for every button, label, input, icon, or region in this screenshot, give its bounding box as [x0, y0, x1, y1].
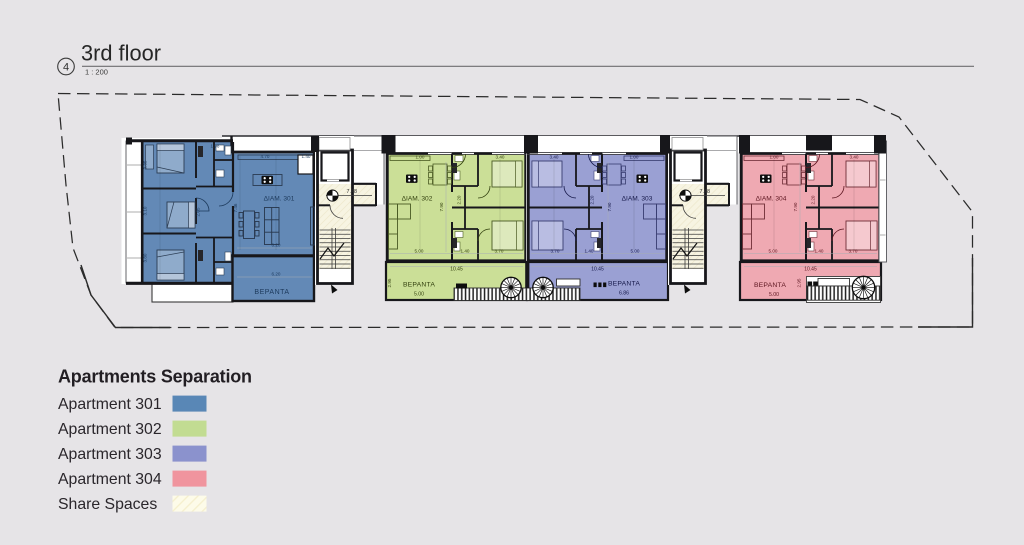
svg-text:7.48: 7.48: [700, 189, 711, 195]
svg-text:3.10: 3.10: [143, 206, 148, 215]
svg-text:ΔΙΑΜ. 302: ΔΙΑΜ. 302: [402, 196, 433, 203]
svg-text:7.46: 7.46: [233, 203, 238, 212]
svg-text:ΒΕΡΑΝΤΑ: ΒΕΡΑΝΤΑ: [403, 282, 435, 289]
svg-text:1 : 200: 1 : 200: [85, 68, 108, 77]
svg-text:2.05: 2.05: [196, 207, 201, 216]
svg-text:2.20: 2.20: [457, 195, 462, 204]
svg-text:Apartment 303: Apartment 303: [58, 446, 162, 463]
svg-text:10.45: 10.45: [591, 267, 604, 273]
svg-text:1.40: 1.40: [302, 154, 311, 159]
svg-text:7.90: 7.90: [607, 202, 612, 211]
svg-text:ΒΕΡΑΝΤΑ: ΒΕΡΑΝΤΑ: [608, 281, 640, 288]
svg-text:7.48: 7.48: [347, 189, 358, 195]
svg-text:Apartment 302: Apartment 302: [58, 421, 162, 438]
svg-text:3.80: 3.80: [143, 253, 148, 262]
svg-text:Apartment 304: Apartment 304: [58, 471, 162, 488]
svg-text:Share Spaces: Share Spaces: [58, 496, 157, 513]
svg-text:Apartment 301: Apartment 301: [58, 396, 162, 413]
svg-text:3.35: 3.35: [143, 160, 148, 169]
svg-text:10.45: 10.45: [450, 267, 463, 273]
svg-text:5.00: 5.00: [631, 249, 640, 254]
svg-text:1.40: 1.40: [461, 249, 470, 254]
svg-text:5.00: 5.00: [769, 292, 779, 298]
svg-text:2.20: 2.20: [590, 195, 595, 204]
svg-text:5.00: 5.00: [769, 249, 778, 254]
svg-text:2.95: 2.95: [387, 278, 392, 287]
svg-text:2.95: 2.95: [797, 278, 802, 287]
svg-text:ΒΕΡΑΝΤΑ: ΒΕΡΑΝΤΑ: [754, 282, 786, 289]
svg-text:2.20: 2.20: [811, 195, 816, 204]
svg-text:7.90: 7.90: [793, 202, 798, 211]
svg-text:ΔΙΑΜ. 304: ΔΙΑΜ. 304: [756, 196, 787, 203]
svg-text:4: 4: [63, 62, 69, 74]
svg-text:1.40: 1.40: [815, 249, 824, 254]
svg-text:3.70: 3.70: [495, 249, 504, 254]
svg-text:6.86: 6.86: [619, 291, 629, 297]
svg-text:7.90: 7.90: [439, 202, 444, 211]
svg-text:ΔΙΑΜ. 301: ΔΙΑΜ. 301: [264, 196, 295, 203]
svg-text:ΒΕΡΑΝΤΑ: ΒΕΡΑΝΤΑ: [254, 289, 289, 296]
svg-text:3rd floor: 3rd floor: [81, 41, 161, 66]
svg-text:5.00: 5.00: [414, 292, 424, 298]
svg-text:ΔΙΑΜ. 303: ΔΙΑΜ. 303: [622, 196, 653, 203]
svg-text:Apartments Separation: Apartments Separation: [58, 366, 252, 386]
svg-text:1.40: 1.40: [585, 249, 594, 254]
svg-text:5.00: 5.00: [415, 249, 424, 254]
svg-text:4.70: 4.70: [261, 154, 270, 159]
svg-text:3.70: 3.70: [551, 249, 560, 254]
svg-text:1.98: 1.98: [211, 144, 220, 149]
svg-text:10.45: 10.45: [804, 267, 817, 273]
svg-text:6.20: 6.20: [272, 272, 281, 277]
svg-text:3.70: 3.70: [849, 249, 858, 254]
